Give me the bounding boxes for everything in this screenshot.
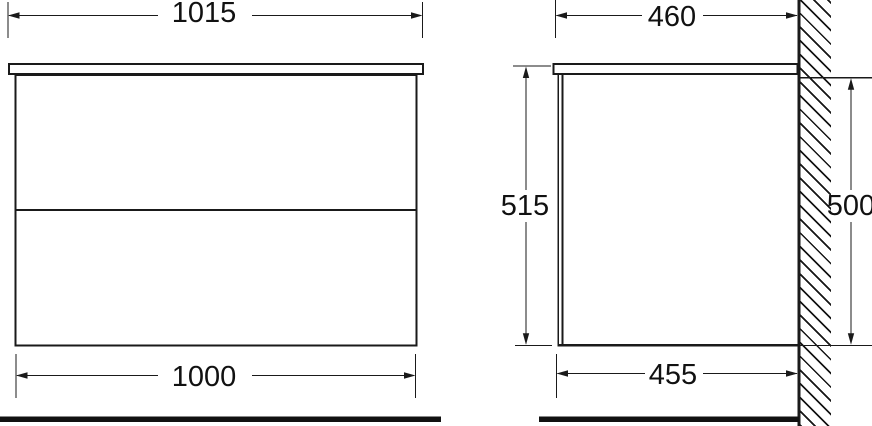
dim-side-carcass-height: 500 [799, 78, 872, 346]
arrowhead-right [411, 12, 423, 18]
arrowhead-left [557, 370, 569, 376]
dim-label-countertop-depth: 460 [648, 1, 696, 33]
arrowhead-left [556, 12, 568, 18]
side-floor-line [539, 417, 799, 423]
dim-side-countertop-depth: 460 [556, 0, 798, 38]
technical-drawing: 1015 1000 [0, 0, 872, 426]
arrowhead-right [404, 372, 416, 378]
arrowhead-right [786, 12, 798, 18]
arrowhead-down [848, 333, 854, 345]
arrowhead-left [16, 372, 28, 378]
dim-front-cabinet-width: 1000 [16, 354, 416, 398]
side-countertop [554, 64, 798, 74]
arrowhead-up [523, 67, 529, 79]
dim-side-overall-height: 515 [501, 66, 552, 346]
dim-label-cabinet-depth: 455 [649, 359, 697, 391]
arrowhead-up [848, 78, 854, 90]
front-countertop [9, 64, 423, 74]
front-view: 1015 1000 [0, 0, 441, 422]
dim-label-overall-height: 515 [501, 190, 549, 222]
dim-front-countertop-width: 1015 [8, 0, 423, 38]
dim-label-cabinet-width: 1000 [172, 361, 237, 393]
cabinet-dimension-drawing: 1015 1000 [0, 0, 872, 426]
arrowhead-down [523, 333, 529, 345]
arrowhead-left [8, 12, 20, 18]
dim-label-countertop-width: 1015 [172, 0, 237, 29]
dim-label-carcass-height: 500 [827, 190, 872, 222]
arrowhead-right [786, 370, 798, 376]
side-view: 460 515 [501, 0, 872, 426]
dim-side-cabinet-depth: 455 [557, 354, 798, 398]
front-floor-line [0, 417, 441, 423]
